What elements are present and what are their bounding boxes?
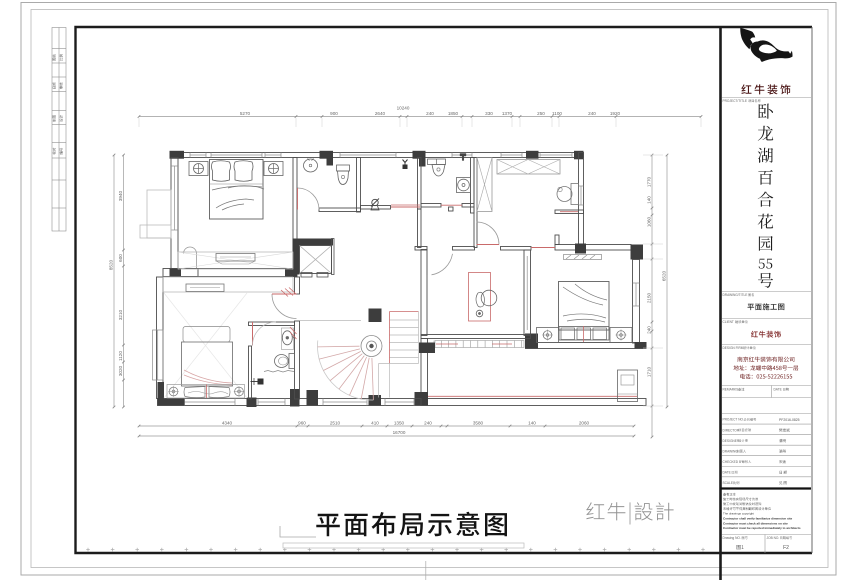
svg-text:140: 140 (646, 196, 651, 204)
svg-text:DRAWING: DRAWING (723, 449, 739, 453)
svg-text:1710: 1710 (646, 366, 651, 377)
svg-text:Contractor shall verify famili: Contractor shall verify familiarize dime… (723, 517, 793, 521)
svg-text:3940: 3940 (118, 190, 123, 201)
svg-text:DATE: DATE (723, 470, 731, 474)
svg-text:330: 330 (485, 111, 493, 116)
svg-text:CLIENT: CLIENT (723, 320, 734, 324)
svg-text:2060: 2060 (579, 420, 590, 425)
svg-text:5270: 5270 (240, 111, 251, 116)
svg-text:3210: 3210 (118, 309, 123, 320)
svg-text:2150: 2150 (646, 292, 651, 303)
svg-text:1120: 1120 (118, 351, 123, 361)
svg-text:1060: 1060 (646, 216, 651, 227)
svg-text:F2: F2 (783, 545, 789, 551)
svg-text:600: 600 (118, 254, 123, 262)
svg-text:1920: 1920 (610, 111, 621, 116)
svg-text:10240: 10240 (397, 106, 410, 111)
svg-text:2510: 2510 (330, 420, 341, 425)
svg-text:250: 250 (537, 111, 545, 116)
svg-text:CHECKED BY: CHECKED BY (723, 460, 745, 464)
svg-text:1350: 1350 (394, 420, 405, 425)
svg-text:16700: 16700 (393, 430, 406, 435)
svg-text:2640: 2640 (375, 111, 386, 116)
svg-text:Contractor must check all dime: Contractor must check all dimensions on … (723, 521, 788, 525)
svg-text:140: 140 (528, 420, 536, 425)
svg-text:1100: 1100 (552, 111, 562, 116)
svg-text:DIRECTOR: DIRECTOR (723, 428, 740, 432)
svg-text:Contractor must be reported im: Contractor must be reported immediately … (723, 526, 801, 530)
svg-text:DESIGN FIRM: DESIGN FIRM (723, 346, 744, 350)
svg-text:JOB NO.: JOB NO. (767, 536, 780, 540)
svg-text:DRAWING/TITLE: DRAWING/TITLE (723, 293, 748, 297)
svg-text:240: 240 (646, 326, 651, 334)
svg-text:960: 960 (298, 420, 306, 425)
svg-text:240: 240 (588, 111, 596, 116)
svg-text:410: 410 (371, 420, 379, 425)
svg-text:240: 240 (424, 420, 432, 425)
svg-text:REMARKS: REMARKS (723, 388, 739, 392)
svg-text:1770: 1770 (646, 176, 651, 187)
svg-text:3580: 3580 (473, 420, 484, 425)
svg-text:3020: 3020 (118, 365, 123, 376)
svg-text:6520: 6520 (661, 270, 666, 281)
svg-text:PF2016-0825: PF2016-0825 (779, 418, 800, 422)
svg-text:SCALE: SCALE (723, 481, 733, 485)
svg-text:DATE: DATE (774, 388, 782, 392)
svg-text:900: 900 (330, 111, 338, 116)
svg-text:DESIGNER: DESIGNER (723, 439, 740, 443)
svg-text:PROJECT NO.: PROJECT NO. (723, 418, 744, 422)
svg-text:8520: 8520 (108, 259, 113, 270)
svg-text:240: 240 (426, 111, 434, 116)
svg-text:The drawings copyright: The drawings copyright (723, 512, 754, 516)
svg-text:4340: 4340 (222, 420, 233, 425)
svg-text:1850: 1850 (448, 111, 459, 116)
svg-text:PROJECT/TITLE: PROJECT/TITLE (723, 99, 747, 103)
svg-text:Drawing NO.: Drawing NO. (723, 536, 741, 540)
svg-text:1370: 1370 (502, 111, 513, 116)
